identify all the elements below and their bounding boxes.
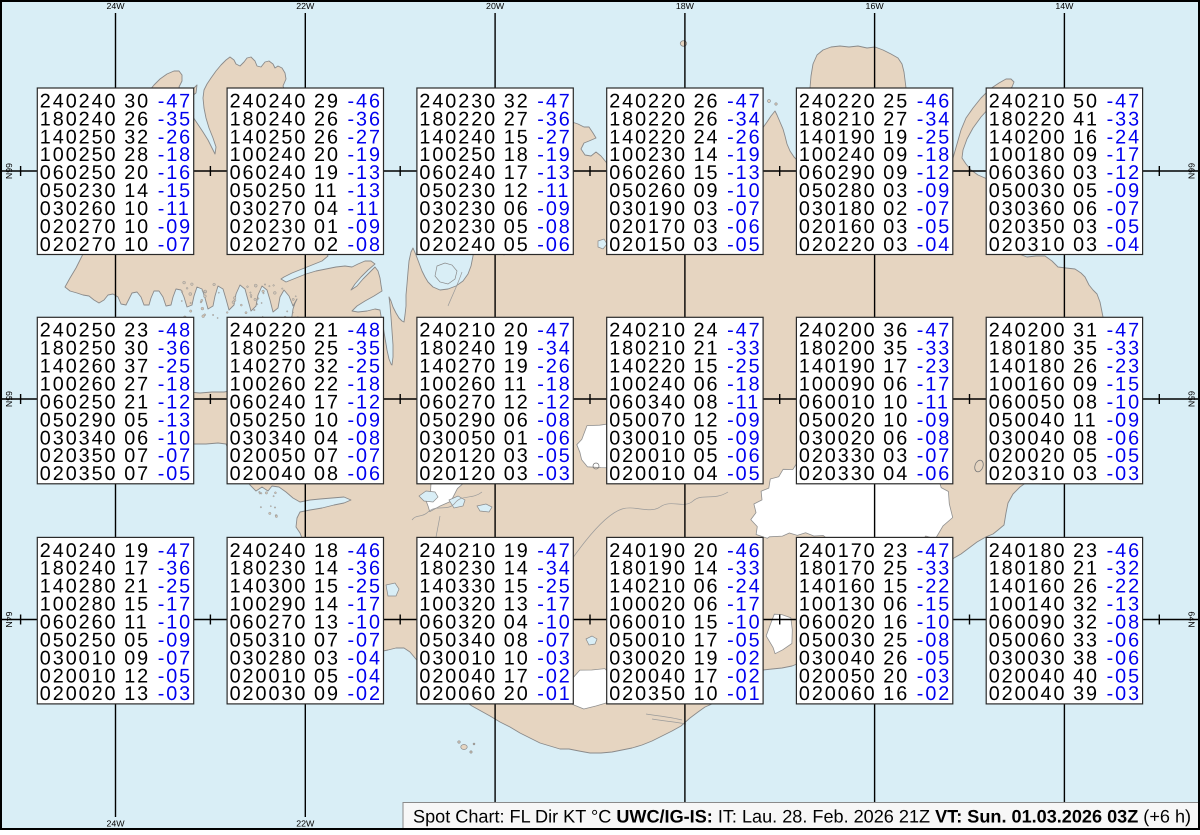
svg-text:02: 02 — [314, 234, 340, 256]
svg-text:03: 03 — [883, 234, 909, 256]
svg-text:07: 07 — [124, 463, 150, 485]
svg-text:03: 03 — [1073, 463, 1099, 485]
svg-text:Spot Chart: FL Dir KT °C UWC/I: Spot Chart: FL Dir KT °C UWC/IG-IS: IT: … — [413, 807, 1191, 827]
svg-text:16W: 16W — [866, 1, 885, 11]
svg-text:020270: 020270 — [230, 234, 308, 256]
svg-text:-04: -04 — [1107, 234, 1141, 256]
svg-text:66N: 66N — [1187, 163, 1197, 179]
svg-text:020010: 020010 — [609, 463, 687, 485]
svg-text:-03: -03 — [537, 463, 571, 485]
svg-text:22W: 22W — [296, 819, 315, 829]
svg-text:020240: 020240 — [419, 234, 497, 256]
svg-text:05: 05 — [504, 234, 530, 256]
svg-text:16: 16 — [883, 683, 909, 705]
svg-text:64N: 64N — [4, 611, 14, 627]
svg-text:020310: 020310 — [989, 463, 1067, 485]
svg-text:-03: -03 — [1107, 463, 1141, 485]
svg-text:020020: 020020 — [40, 683, 118, 705]
svg-text:020040: 020040 — [989, 683, 1067, 705]
svg-text:-04: -04 — [917, 234, 951, 256]
svg-text:020330: 020330 — [799, 463, 877, 485]
svg-text:10: 10 — [124, 234, 150, 256]
svg-text:020270: 020270 — [40, 234, 118, 256]
svg-text:-02: -02 — [917, 683, 951, 705]
svg-text:18W: 18W — [676, 1, 695, 11]
svg-text:020030: 020030 — [230, 683, 308, 705]
svg-text:020350: 020350 — [40, 463, 118, 485]
svg-text:-06: -06 — [348, 463, 382, 485]
svg-text:04: 04 — [883, 463, 909, 485]
svg-text:-05: -05 — [727, 463, 761, 485]
svg-text:09: 09 — [314, 683, 340, 705]
svg-text:66N: 66N — [4, 163, 14, 179]
svg-text:020310: 020310 — [989, 234, 1067, 256]
svg-text:020350: 020350 — [609, 683, 687, 705]
svg-text:-08: -08 — [348, 234, 382, 256]
svg-text:-07: -07 — [158, 234, 192, 256]
svg-text:03: 03 — [694, 234, 720, 256]
svg-text:04: 04 — [694, 463, 720, 485]
svg-text:-05: -05 — [158, 463, 192, 485]
svg-text:020060: 020060 — [799, 683, 877, 705]
svg-text:22W: 22W — [296, 1, 315, 11]
svg-text:65N: 65N — [4, 391, 14, 407]
svg-text:-01: -01 — [537, 683, 571, 705]
svg-text:020220: 020220 — [799, 234, 877, 256]
svg-text:-05: -05 — [727, 234, 761, 256]
svg-text:-06: -06 — [917, 463, 951, 485]
svg-text:020060: 020060 — [419, 683, 497, 705]
svg-text:64N: 64N — [1187, 611, 1197, 627]
svg-text:-01: -01 — [727, 683, 761, 705]
svg-text:08: 08 — [314, 463, 340, 485]
svg-text:020120: 020120 — [419, 463, 497, 485]
svg-text:-03: -03 — [158, 683, 192, 705]
svg-text:39: 39 — [1073, 683, 1099, 705]
svg-text:14W: 14W — [1055, 1, 1074, 11]
svg-text:20: 20 — [504, 683, 530, 705]
svg-text:20W: 20W — [486, 1, 505, 11]
svg-text:020150: 020150 — [609, 234, 687, 256]
svg-text:03: 03 — [1073, 234, 1099, 256]
svg-text:020040: 020040 — [230, 463, 308, 485]
svg-text:10: 10 — [694, 683, 720, 705]
svg-text:24W: 24W — [106, 1, 125, 11]
svg-text:65N: 65N — [1187, 391, 1197, 407]
svg-text:-06: -06 — [537, 234, 571, 256]
svg-text:-03: -03 — [1107, 683, 1141, 705]
svg-text:03: 03 — [504, 463, 530, 485]
svg-text:24W: 24W — [106, 819, 125, 829]
svg-text:-02: -02 — [348, 683, 382, 705]
svg-text:13: 13 — [124, 683, 150, 705]
